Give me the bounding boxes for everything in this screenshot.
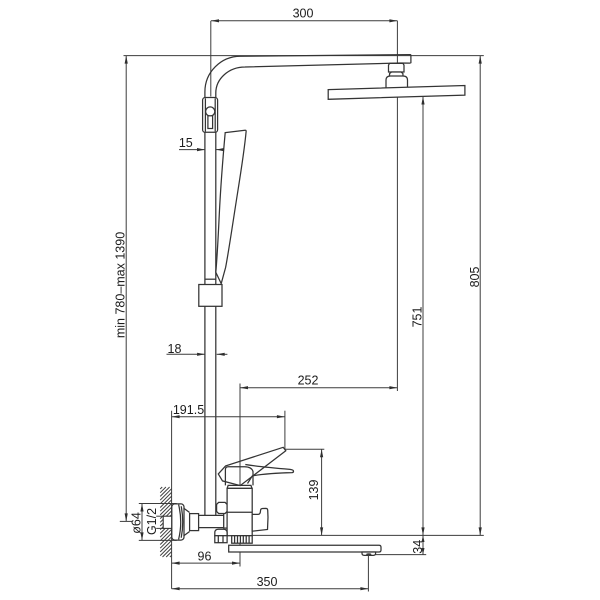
- svg-text:min 780–max 1390: min 780–max 1390: [113, 232, 127, 338]
- svg-text:G1/2: G1/2: [145, 508, 159, 535]
- svg-text:96: 96: [198, 549, 212, 563]
- svg-text:191.5: 191.5: [173, 403, 204, 417]
- svg-text:252: 252: [298, 374, 319, 388]
- svg-text:805: 805: [468, 267, 482, 288]
- svg-text:ø64: ø64: [130, 512, 144, 534]
- svg-text:139: 139: [307, 480, 321, 501]
- svg-text:18: 18: [168, 342, 182, 356]
- svg-text:34: 34: [411, 540, 425, 554]
- svg-text:350: 350: [257, 575, 278, 589]
- svg-text:15: 15: [179, 136, 193, 150]
- svg-text:300: 300: [293, 7, 314, 21]
- svg-text:751: 751: [410, 307, 424, 328]
